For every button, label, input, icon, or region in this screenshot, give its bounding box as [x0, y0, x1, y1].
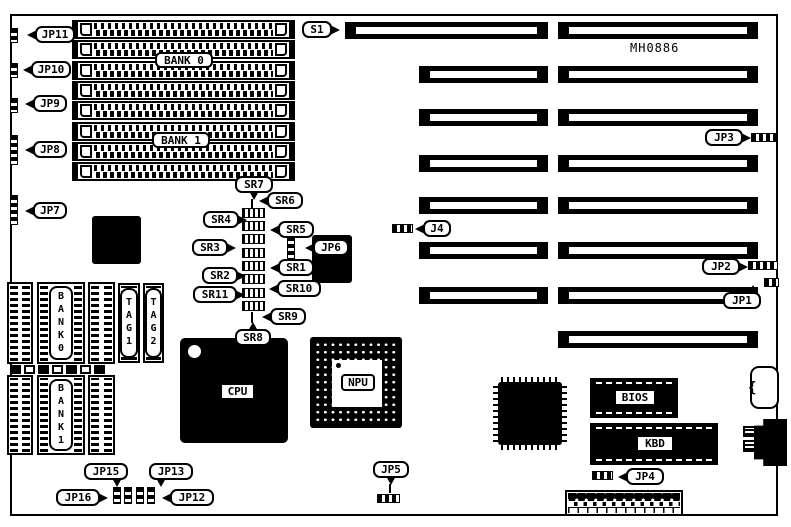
callout-j4: J4 — [423, 220, 451, 237]
tag2-label: TAG2 — [145, 288, 162, 358]
callout-sr5: SR5 — [278, 221, 314, 238]
isa-slot — [419, 197, 548, 214]
callout-jp6: JP6 — [313, 239, 349, 256]
capacitor — [24, 365, 35, 374]
cache-socket — [7, 282, 33, 364]
simm-contacts — [94, 84, 273, 97]
callout-jp16: JP16 — [56, 489, 100, 506]
callout-s1: S1 — [302, 21, 332, 38]
power-connector — [565, 490, 683, 516]
capacitor — [66, 365, 77, 374]
resistor-pack — [242, 234, 265, 244]
callout-jp2: JP2 — [702, 258, 740, 275]
simm-slot-4 — [72, 81, 295, 100]
memory-bank0-label: BANK 0 — [155, 52, 213, 68]
callout-jp11: JP11 — [35, 26, 75, 43]
power-dash-row — [568, 502, 680, 506]
jumper-jp16-pins — [113, 487, 121, 504]
callout-jp10: JP10 — [31, 61, 71, 78]
callout-sr6: SR6 — [267, 192, 303, 209]
bios-socket-dash — [596, 412, 672, 414]
callout-jp15: JP15 — [84, 463, 128, 480]
bios-socket-dash — [596, 382, 672, 384]
jumper-jp9 — [10, 98, 18, 113]
npu-pin1-dot — [336, 363, 341, 368]
jumper-jp12-pins — [147, 487, 155, 504]
jumper-jp15-pins — [124, 487, 132, 504]
power-socket-row — [568, 507, 680, 513]
isa-slot — [345, 22, 548, 39]
qfp-pins-bottom — [501, 445, 559, 450]
bios-label: BIOS — [615, 390, 655, 405]
isa-slot — [419, 242, 548, 259]
jumper-jp6 — [287, 236, 295, 261]
jumper-j4 — [392, 224, 413, 233]
keyboard-connector-pin — [743, 426, 756, 437]
isa-slot — [558, 66, 758, 83]
capacitor — [80, 365, 91, 374]
cache-bank1-label: BANK1 — [49, 379, 73, 451]
callout-sr7: SR7 — [235, 176, 273, 193]
callout-jp5: JP5 — [373, 461, 409, 478]
qfp-chip — [498, 382, 562, 445]
jumper-jp7 — [10, 195, 18, 225]
callout-sr8: SR8 — [235, 329, 271, 346]
isa-slot — [558, 242, 758, 259]
battery — [750, 366, 779, 409]
callout-sr4: SR4 — [203, 211, 239, 228]
jumper-jp10 — [10, 63, 18, 78]
isa-slot — [558, 109, 758, 126]
cache-socket — [88, 282, 115, 364]
callout-jp4: JP4 — [626, 468, 664, 485]
callout-jp13: JP13 — [149, 463, 193, 480]
jumper-jp8 — [10, 135, 18, 165]
callout-sr9: SR9 — [270, 308, 306, 325]
isa-slot — [419, 109, 548, 126]
cpu-label: CPU — [221, 384, 254, 399]
chipset-chip-left — [92, 216, 141, 264]
memory-bank1-label: BANK 1 — [152, 132, 210, 148]
callout-jp7: JP7 — [33, 202, 67, 219]
cache-socket — [88, 375, 115, 455]
jumper-jp3 — [751, 133, 776, 142]
npu-label: NPU — [341, 374, 375, 391]
jumper-jp1 — [764, 278, 779, 287]
callout-jp9: JP9 — [33, 95, 67, 112]
jumper-jp13-pins — [136, 487, 144, 504]
jumper-jp4 — [592, 471, 613, 480]
jumper-jp5 — [377, 494, 400, 503]
kbd-label: KBD — [637, 436, 673, 451]
resistor-pack — [242, 248, 265, 258]
callout-sr2: SR2 — [202, 267, 238, 284]
jumper-jp2 — [748, 261, 778, 270]
kbd-socket-dash — [596, 459, 712, 461]
jumper-jp11 — [10, 28, 18, 43]
isa-slot — [419, 66, 548, 83]
power-pins-row — [568, 493, 680, 501]
resistor-pack — [242, 301, 265, 311]
capacitor — [10, 365, 21, 374]
board-model-text: MH0886 — [630, 41, 679, 55]
simm-slot-5 — [72, 101, 295, 120]
simm-slot-1 — [72, 20, 295, 39]
isa-slot — [558, 22, 758, 39]
capacitor — [94, 365, 105, 374]
kbd-socket-dash — [596, 427, 712, 429]
isa-slot — [558, 331, 758, 348]
callout-jp1: JP1 — [723, 292, 761, 309]
tag1-label: TAG1 — [120, 288, 138, 358]
callout-sr10: SR10 — [277, 280, 321, 297]
resistor-pack — [242, 261, 265, 271]
simm-contacts — [94, 23, 273, 36]
callout-line — [389, 484, 391, 493]
capacitor — [52, 365, 63, 374]
cpu-pin1-dot — [188, 345, 201, 358]
qfp-pins-right — [562, 385, 567, 442]
keyboard-connector-pin — [743, 440, 756, 452]
isa-slot — [419, 155, 548, 172]
motherboard-diagram: BANK 0 BANK 1 JP11 JP10 JP9 JP8 JP7 S1 M… — [0, 0, 791, 527]
isa-slot — [419, 287, 548, 304]
callout-sr1: SR1 — [278, 259, 314, 276]
resistor-pack — [242, 288, 265, 298]
keyboard-connector — [754, 419, 787, 466]
callout-line — [251, 199, 253, 208]
cache-socket — [7, 375, 33, 455]
capacitor — [38, 365, 49, 374]
callout-sr3: SR3 — [192, 239, 228, 256]
callout-jp12: JP12 — [170, 489, 214, 506]
simm-contacts — [94, 104, 273, 117]
callout-jp3: JP3 — [705, 129, 743, 146]
isa-slot — [558, 155, 758, 172]
qfp-pins-left — [493, 385, 498, 442]
qfp-pins-top — [501, 377, 559, 382]
callout-jp8: JP8 — [33, 141, 67, 158]
isa-slot — [558, 197, 758, 214]
callout-sr11: SR11 — [193, 286, 237, 303]
cache-bank0-label: BANK0 — [49, 286, 73, 360]
